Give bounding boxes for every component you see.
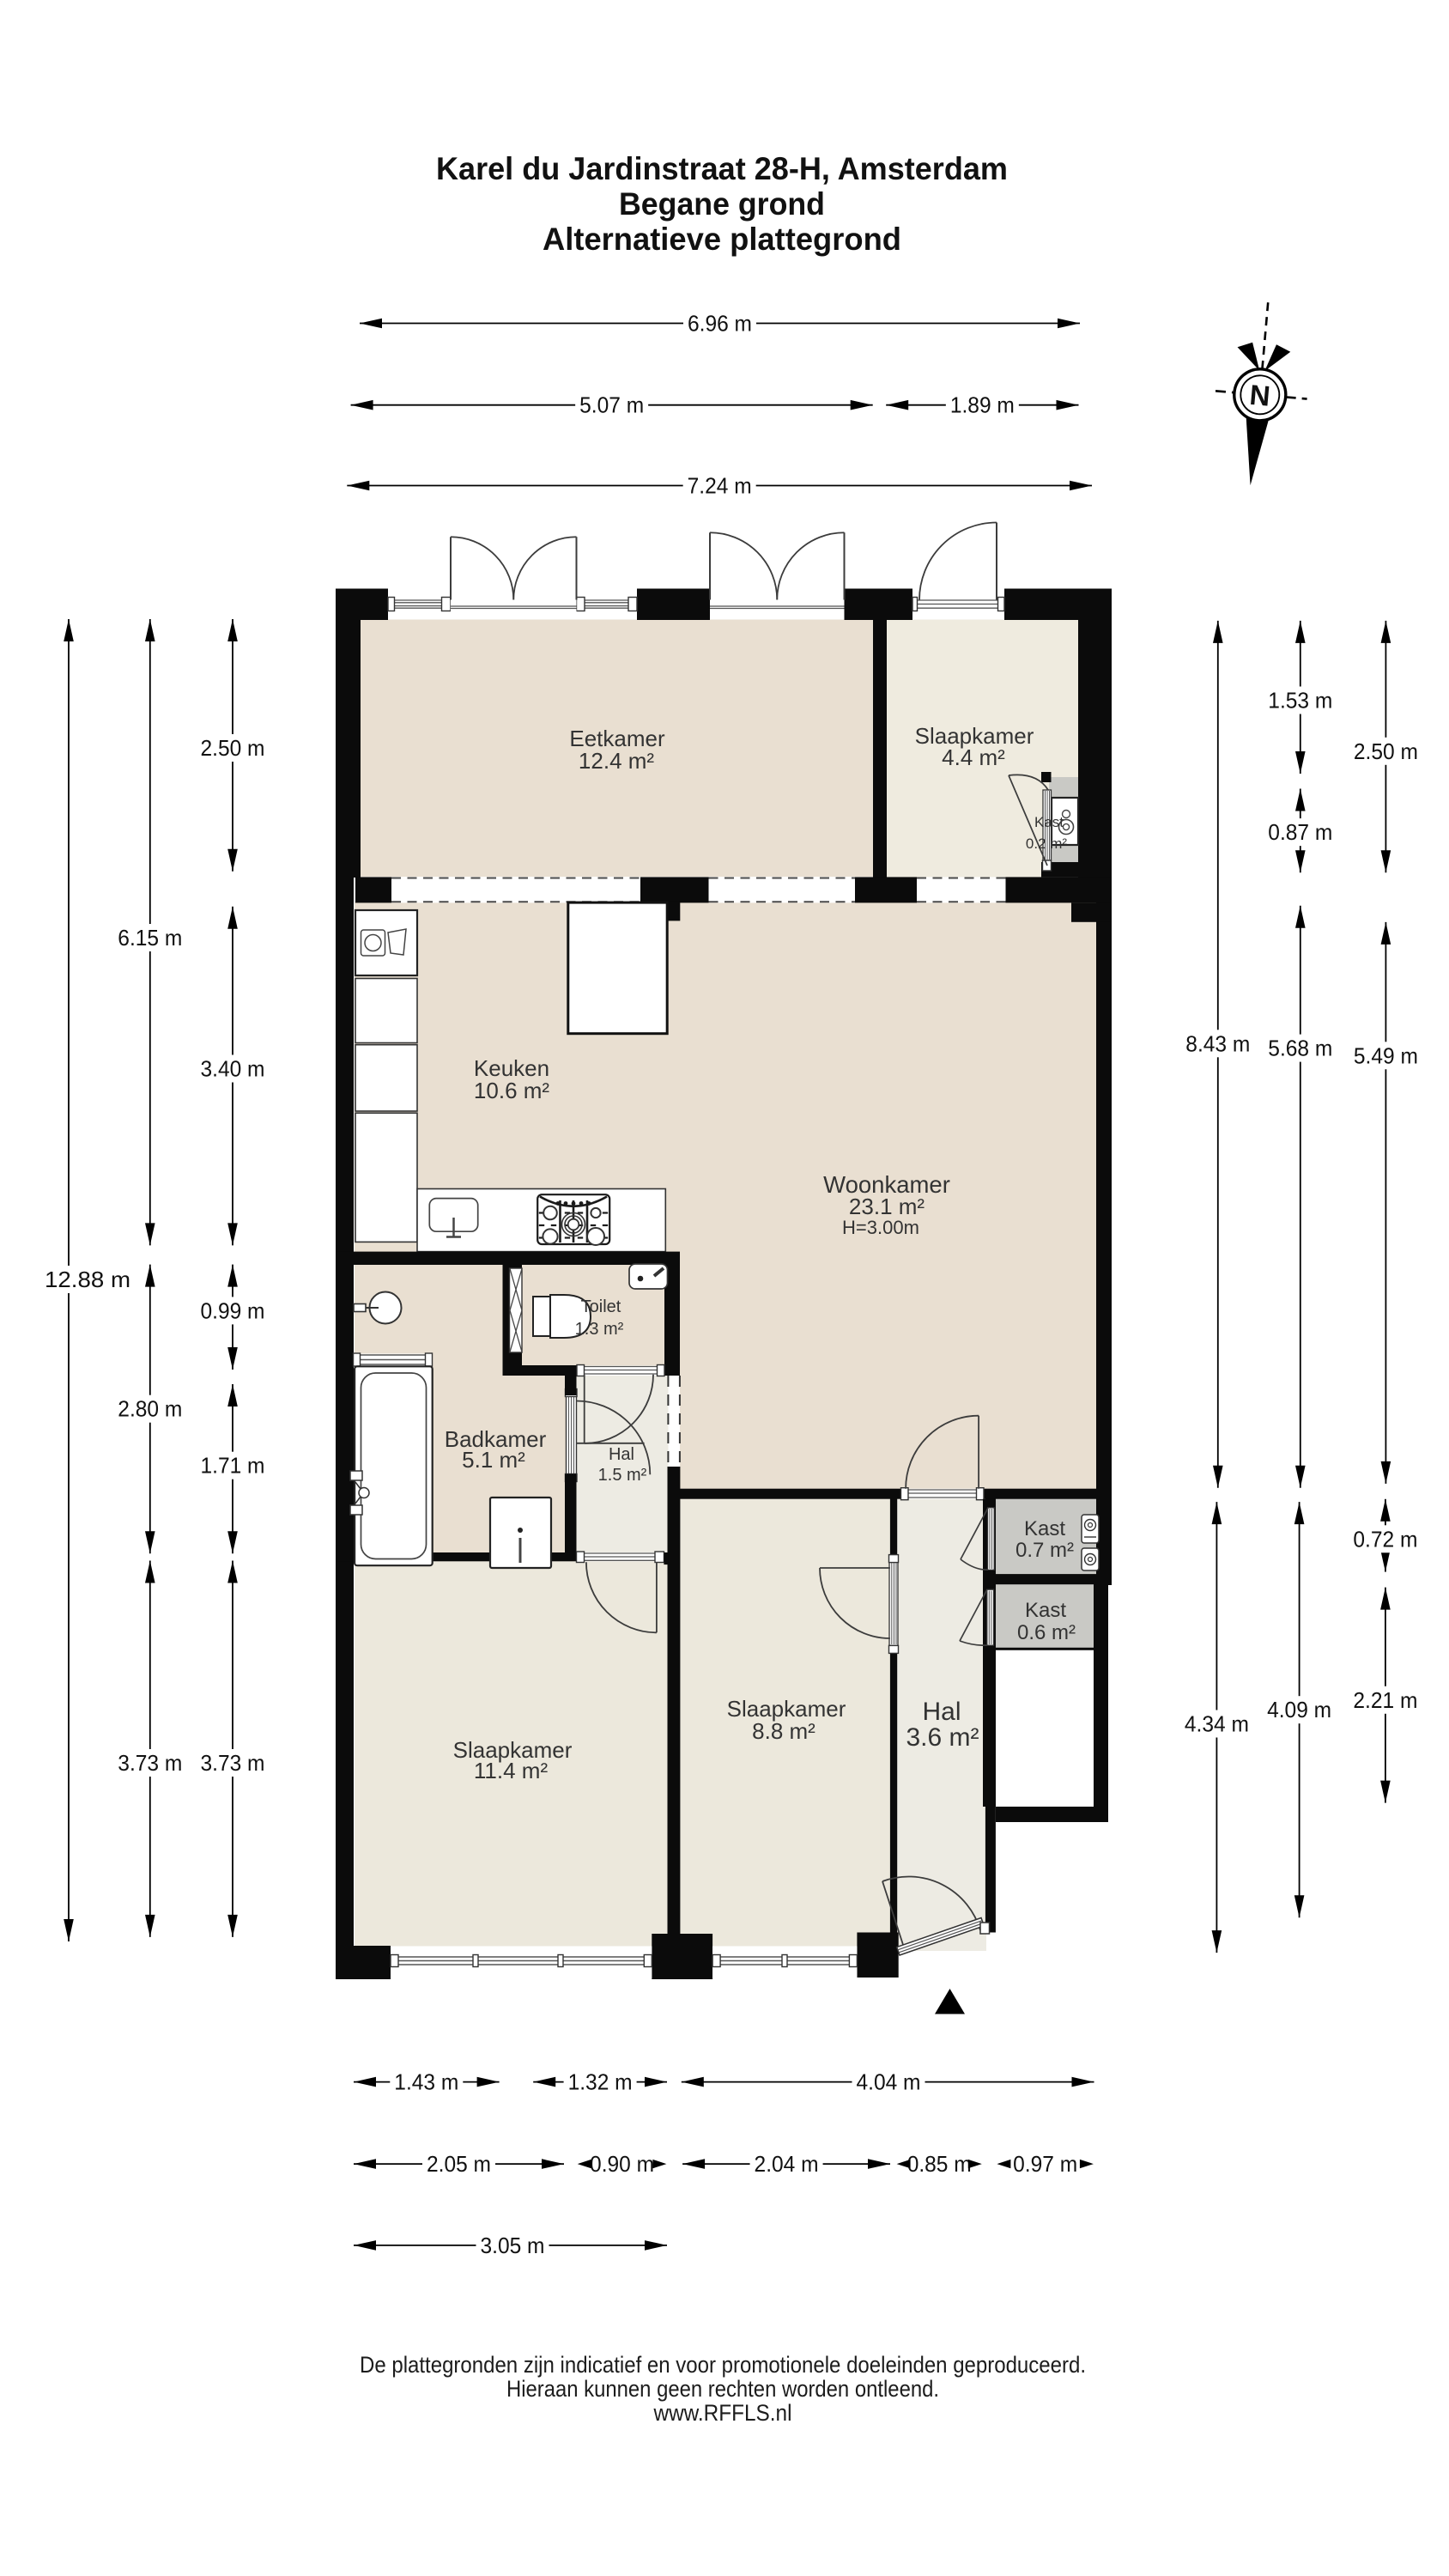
svg-text:0.72 m: 0.72 m xyxy=(1353,1526,1417,1552)
svg-text:Karel du Jardinstraat 28-H, Am: Karel du Jardinstraat 28-H, Amsterdam xyxy=(436,151,1008,186)
svg-text:11.4 m²: 11.4 m² xyxy=(474,1758,549,1783)
svg-text:2.80 m: 2.80 m xyxy=(118,1396,182,1422)
svg-text:10.6 m²: 10.6 m² xyxy=(474,1078,549,1103)
svg-text:3.73 m: 3.73 m xyxy=(201,1750,265,1776)
svg-text:0.97 m: 0.97 m xyxy=(1013,2151,1077,2177)
svg-text:3.40 m: 3.40 m xyxy=(201,1056,265,1082)
svg-text:6.15 m: 6.15 m xyxy=(118,925,182,951)
svg-text:Hal: Hal xyxy=(609,1445,634,1464)
svg-text:0.6 m²: 0.6 m² xyxy=(1017,1621,1076,1644)
svg-text:1.5 m²: 1.5 m² xyxy=(598,1466,647,1485)
svg-text:4.09 m: 4.09 m xyxy=(1267,1697,1331,1722)
svg-text:6.96 m: 6.96 m xyxy=(688,311,752,337)
svg-text:De plattegronden zijn indicati: De plattegronden zijn indicatief en voor… xyxy=(360,2352,1086,2378)
svg-text:Alternatieve plattegrond: Alternatieve plattegrond xyxy=(543,222,901,257)
svg-text:2.50 m: 2.50 m xyxy=(1354,738,1418,764)
svg-text:12.4 m²: 12.4 m² xyxy=(579,748,654,774)
svg-text:2.21 m: 2.21 m xyxy=(1353,1687,1417,1713)
svg-text:1.71 m: 1.71 m xyxy=(201,1453,265,1479)
svg-text:1.53 m: 1.53 m xyxy=(1268,688,1332,714)
svg-text:Toilet: Toilet xyxy=(581,1297,621,1316)
svg-text:Kast: Kast xyxy=(1025,1599,1066,1622)
svg-text:Hal: Hal xyxy=(922,1698,961,1726)
svg-text:2.05 m: 2.05 m xyxy=(427,2151,491,2177)
svg-text:8.43 m: 8.43 m xyxy=(1185,1030,1250,1056)
svg-text:0.90 m: 0.90 m xyxy=(590,2151,654,2177)
svg-text:0.99 m: 0.99 m xyxy=(201,1297,265,1323)
svg-text:Kast: Kast xyxy=(1034,814,1064,830)
svg-text:5.07 m: 5.07 m xyxy=(579,392,644,418)
svg-text:3.73 m: 3.73 m xyxy=(118,1750,182,1776)
svg-text:0.87 m: 0.87 m xyxy=(1268,819,1332,845)
svg-text:4.34 m: 4.34 m xyxy=(1185,1711,1249,1737)
svg-text:H=3.00m: H=3.00m xyxy=(842,1217,919,1238)
svg-text:www.RFFLS.nl: www.RFFLS.nl xyxy=(653,2400,792,2426)
svg-text:Kast: Kast xyxy=(1024,1517,1065,1540)
svg-text:5.68 m: 5.68 m xyxy=(1268,1036,1332,1061)
svg-text:1.3 m²: 1.3 m² xyxy=(575,1320,624,1339)
svg-text:5.49 m: 5.49 m xyxy=(1354,1042,1418,1068)
svg-text:Begane grond: Begane grond xyxy=(619,186,825,222)
svg-text:1.32 m: 1.32 m xyxy=(568,2069,633,2095)
svg-text:12.88 m: 12.88 m xyxy=(45,1267,130,1292)
svg-text:2.50 m: 2.50 m xyxy=(201,735,265,761)
svg-text:Hieraan kunnen geen rechten wo: Hieraan kunnen geen rechten worden ontle… xyxy=(506,2376,939,2402)
svg-text:4.04 m: 4.04 m xyxy=(857,2069,921,2095)
svg-text:0.85 m: 0.85 m xyxy=(907,2151,972,2177)
svg-text:3.6 m²: 3.6 m² xyxy=(906,1723,979,1752)
svg-text:8.8 m²: 8.8 m² xyxy=(752,1718,815,1744)
svg-text:2.04 m: 2.04 m xyxy=(755,2151,819,2177)
svg-text:0.2 m²: 0.2 m² xyxy=(1026,835,1068,852)
svg-text:23.1 m²: 23.1 m² xyxy=(849,1194,925,1219)
svg-text:4.4 m²: 4.4 m² xyxy=(942,744,1005,770)
svg-text:7.24 m: 7.24 m xyxy=(688,473,752,499)
svg-text:5.1 m²: 5.1 m² xyxy=(462,1447,525,1473)
svg-text:1.89 m: 1.89 m xyxy=(950,392,1015,418)
svg-text:3.05 m: 3.05 m xyxy=(481,2233,545,2258)
svg-text:1.43 m: 1.43 m xyxy=(394,2069,458,2095)
svg-text:0.7 m²: 0.7 m² xyxy=(1016,1539,1074,1562)
svg-text:N: N xyxy=(1248,379,1271,412)
